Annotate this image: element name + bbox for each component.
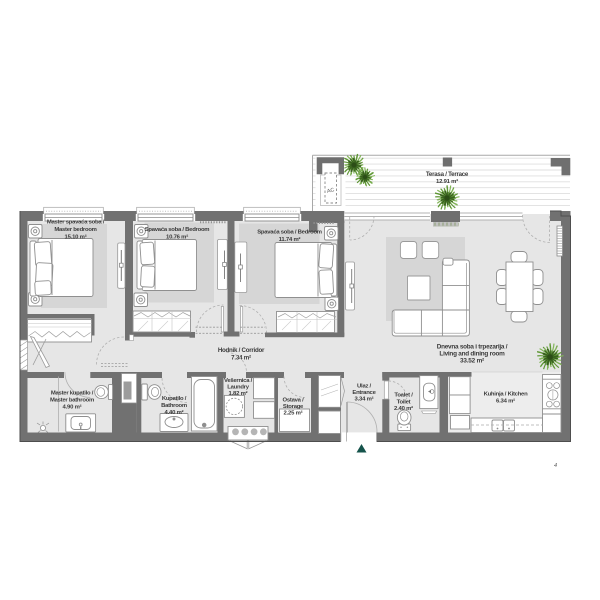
svg-text:Kuhinja / Kitchen: Kuhinja / Kitchen: [484, 392, 529, 398]
svg-text:Master kupatilo /: Master kupatilo /: [51, 391, 94, 397]
svg-text:Bathroom: Bathroom: [161, 403, 187, 409]
svg-text:Toilet: Toilet: [397, 400, 411, 406]
svg-text:1.82 m²: 1.82 m²: [229, 390, 248, 397]
svg-text:Vešernica /: Vešernica /: [224, 378, 253, 384]
svg-text:Master bedroom: Master bedroom: [54, 227, 96, 233]
svg-text:2.25 m²: 2.25 m²: [284, 410, 303, 417]
svg-text:Ulaz /: Ulaz /: [357, 384, 371, 390]
svg-text:11.74 m²: 11.74 m²: [279, 236, 301, 243]
svg-text:12.91 m²: 12.91 m²: [436, 178, 458, 185]
svg-text:Laundry: Laundry: [227, 385, 249, 391]
svg-text:Storage: Storage: [283, 404, 304, 410]
svg-text:Master bathroom: Master bathroom: [50, 398, 94, 404]
svg-text:4.40 m²: 4.40 m²: [165, 409, 184, 416]
svg-text:Kupatilo /: Kupatilo /: [162, 396, 187, 402]
svg-text:33.52 m²: 33.52 m²: [460, 358, 484, 365]
svg-text:Hodnik / Corridor: Hodnik / Corridor: [218, 347, 265, 354]
svg-text:Terasa / Terrace: Terasa / Terrace: [426, 171, 469, 178]
svg-text:Spavaća soba / Bedroom: Spavaća soba / Bedroom: [145, 227, 210, 233]
svg-text:Ostava /: Ostava /: [283, 398, 305, 404]
svg-text:4: 4: [554, 463, 557, 469]
svg-text:3.34 m²: 3.34 m²: [355, 396, 374, 403]
svg-text:15.10 m²: 15.10 m²: [65, 233, 87, 240]
svg-text:10.76 m²: 10.76 m²: [166, 234, 188, 241]
svg-text:6.34 m²: 6.34 m²: [496, 398, 515, 405]
svg-text:Toalet /: Toalet /: [394, 393, 413, 399]
svg-text:Entrance: Entrance: [352, 390, 376, 396]
svg-text:Living and dining room: Living and dining room: [439, 351, 505, 358]
svg-text:7.34 m²: 7.34 m²: [231, 355, 251, 362]
svg-text:Spavaća soba / Bedroom: Spavaća soba / Bedroom: [257, 230, 322, 236]
svg-text:2.40 m²: 2.40 m²: [394, 405, 413, 412]
svg-text:4.90 m²: 4.90 m²: [63, 404, 82, 411]
svg-text:Master spavaća soba /: Master spavaća soba /: [47, 220, 105, 226]
svg-text:Dnevna soba i trpezarija /: Dnevna soba i trpezarija /: [437, 344, 508, 351]
